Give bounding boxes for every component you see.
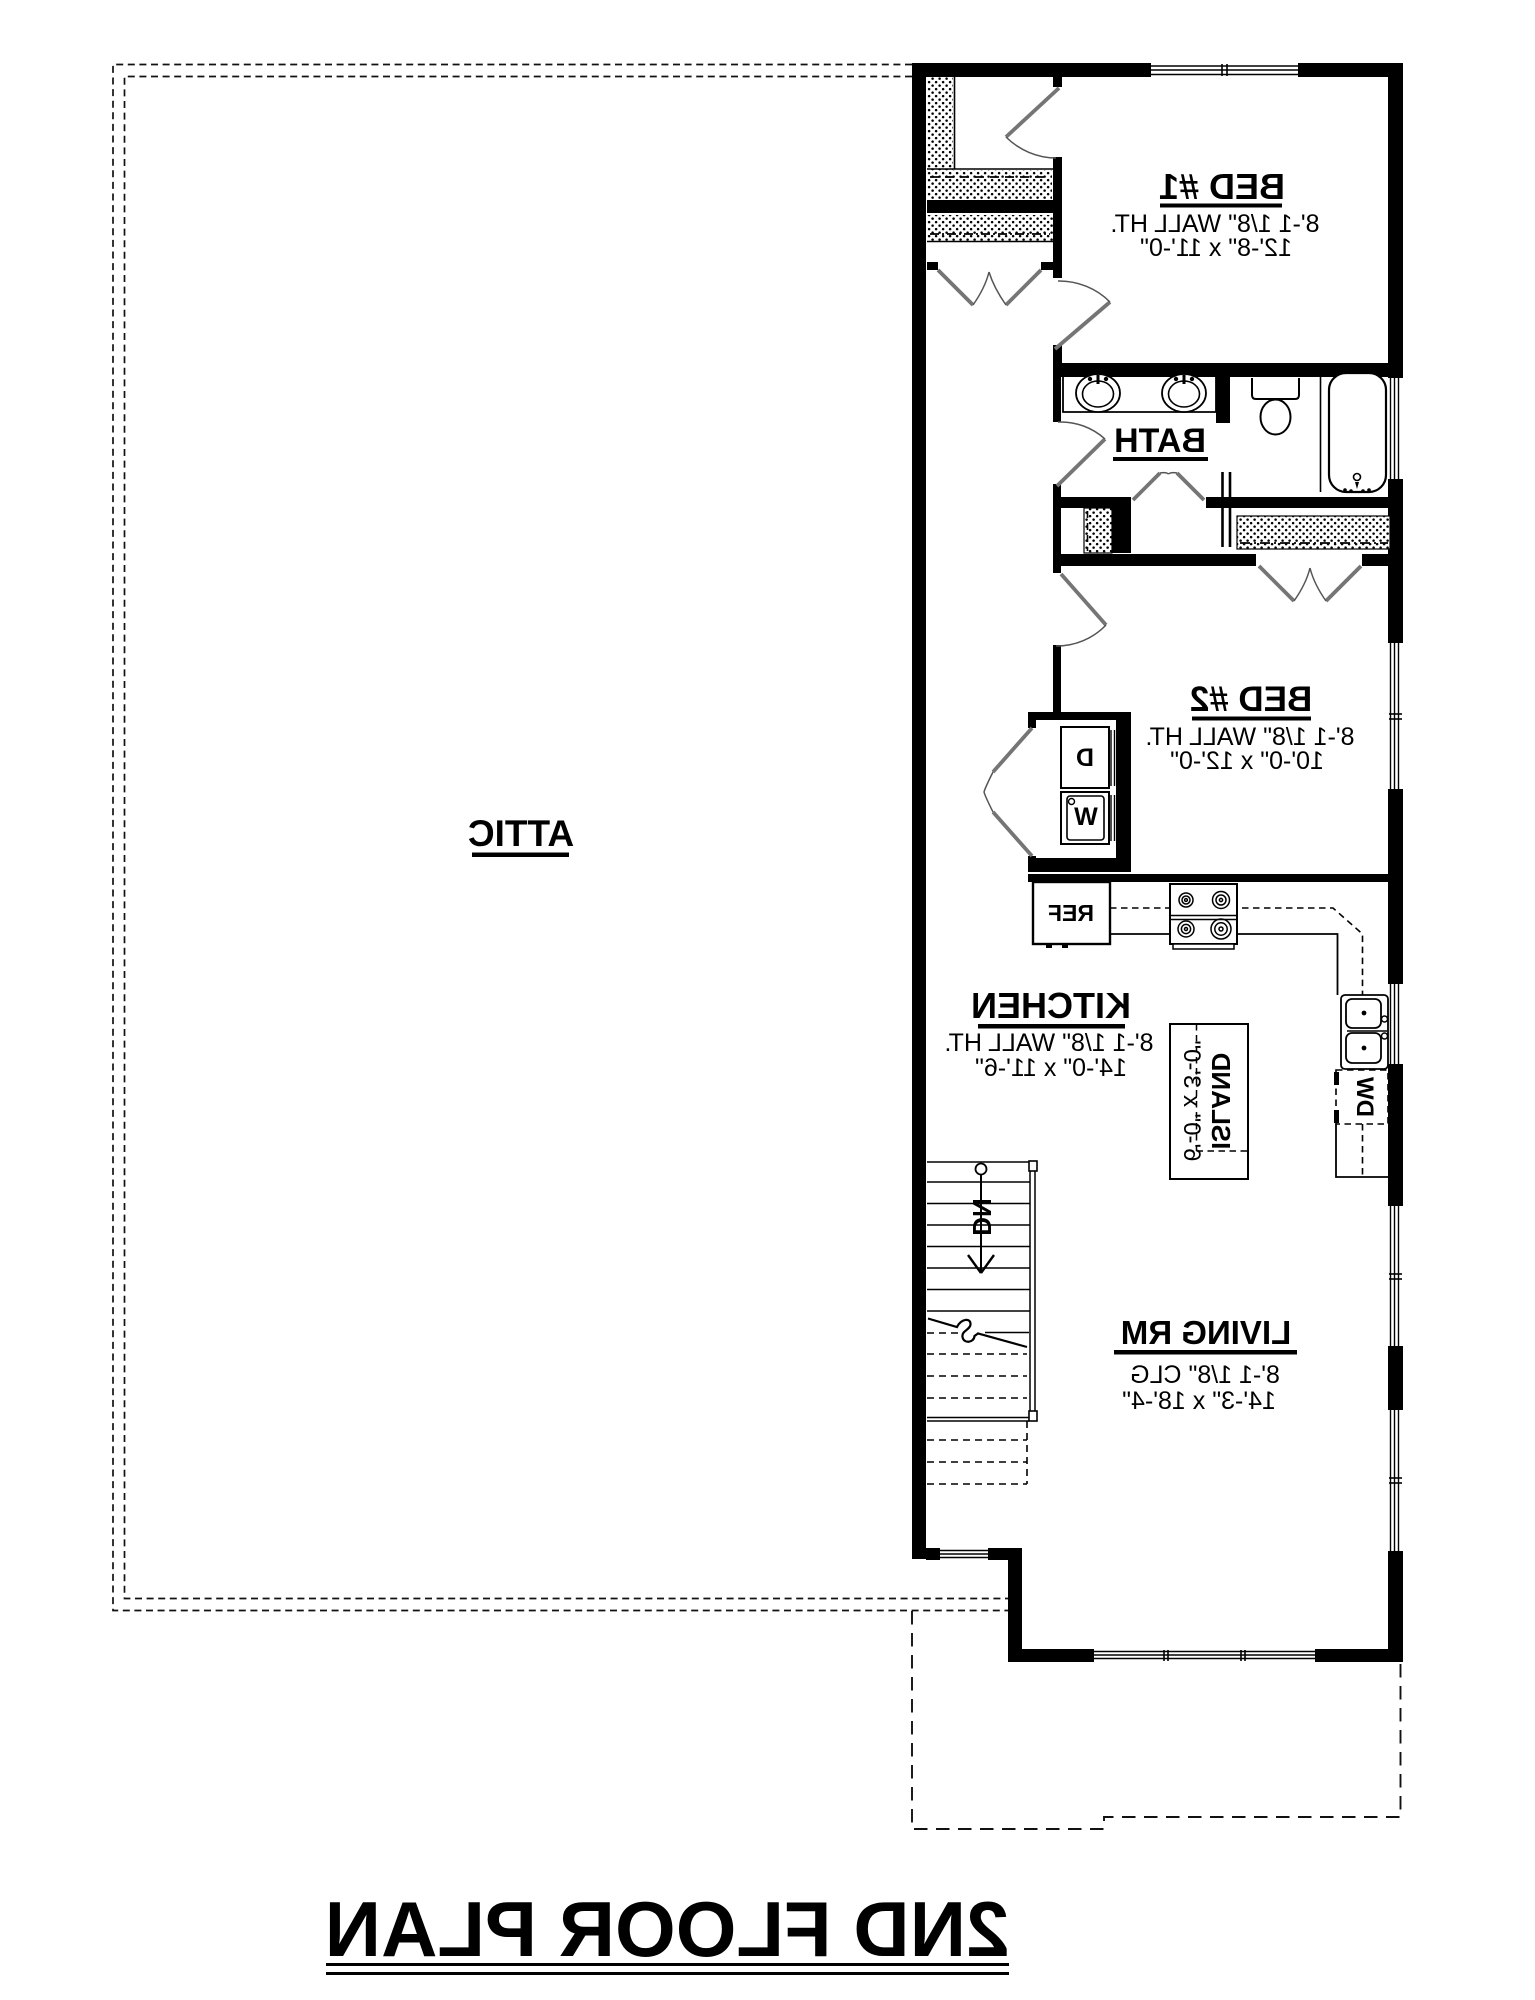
- svg-text:14'-0" x 11'-6": 14'-0" x 11'-6": [975, 1054, 1127, 1082]
- svg-text:KITCHEN: KITCHEN: [971, 985, 1131, 1026]
- svg-text:8'-1 1/8" WALL HT.: 8'-1 1/8" WALL HT.: [944, 1029, 1153, 1057]
- svg-text:REF: REF: [1048, 900, 1094, 926]
- svg-text:W: W: [1074, 803, 1098, 831]
- svg-text:D: D: [1076, 744, 1094, 772]
- svg-text:BED #1: BED #1: [1159, 166, 1285, 207]
- svg-text:14'-3" x 18'-4": 14'-3" x 18'-4": [1122, 1387, 1276, 1415]
- svg-text:12'-8" x 11'-0": 12'-8" x 11'-0": [1140, 234, 1292, 262]
- svg-text:DN: DN: [967, 1198, 997, 1236]
- svg-text:ISLAND: ISLAND: [1206, 1053, 1236, 1150]
- svg-text:6'-0" x 3'-0": 6'-0" x 3'-0": [1178, 1041, 1205, 1162]
- svg-text:DW: DW: [1351, 1077, 1378, 1117]
- svg-text:BATH: BATH: [1114, 422, 1206, 460]
- svg-text:ATTIC: ATTIC: [468, 813, 574, 854]
- svg-text:BED #2: BED #2: [1190, 680, 1313, 719]
- svg-text:8'-1 1/8" CLG: 8'-1 1/8" CLG: [1130, 1361, 1280, 1389]
- svg-text:2ND FLOOR PLAN: 2ND FLOOR PLAN: [325, 1885, 1010, 1973]
- svg-text:10'-0" x 12'-0": 10'-0" x 12'-0": [1170, 747, 1324, 775]
- svg-text:LIVING RM: LIVING RM: [1121, 1314, 1292, 1351]
